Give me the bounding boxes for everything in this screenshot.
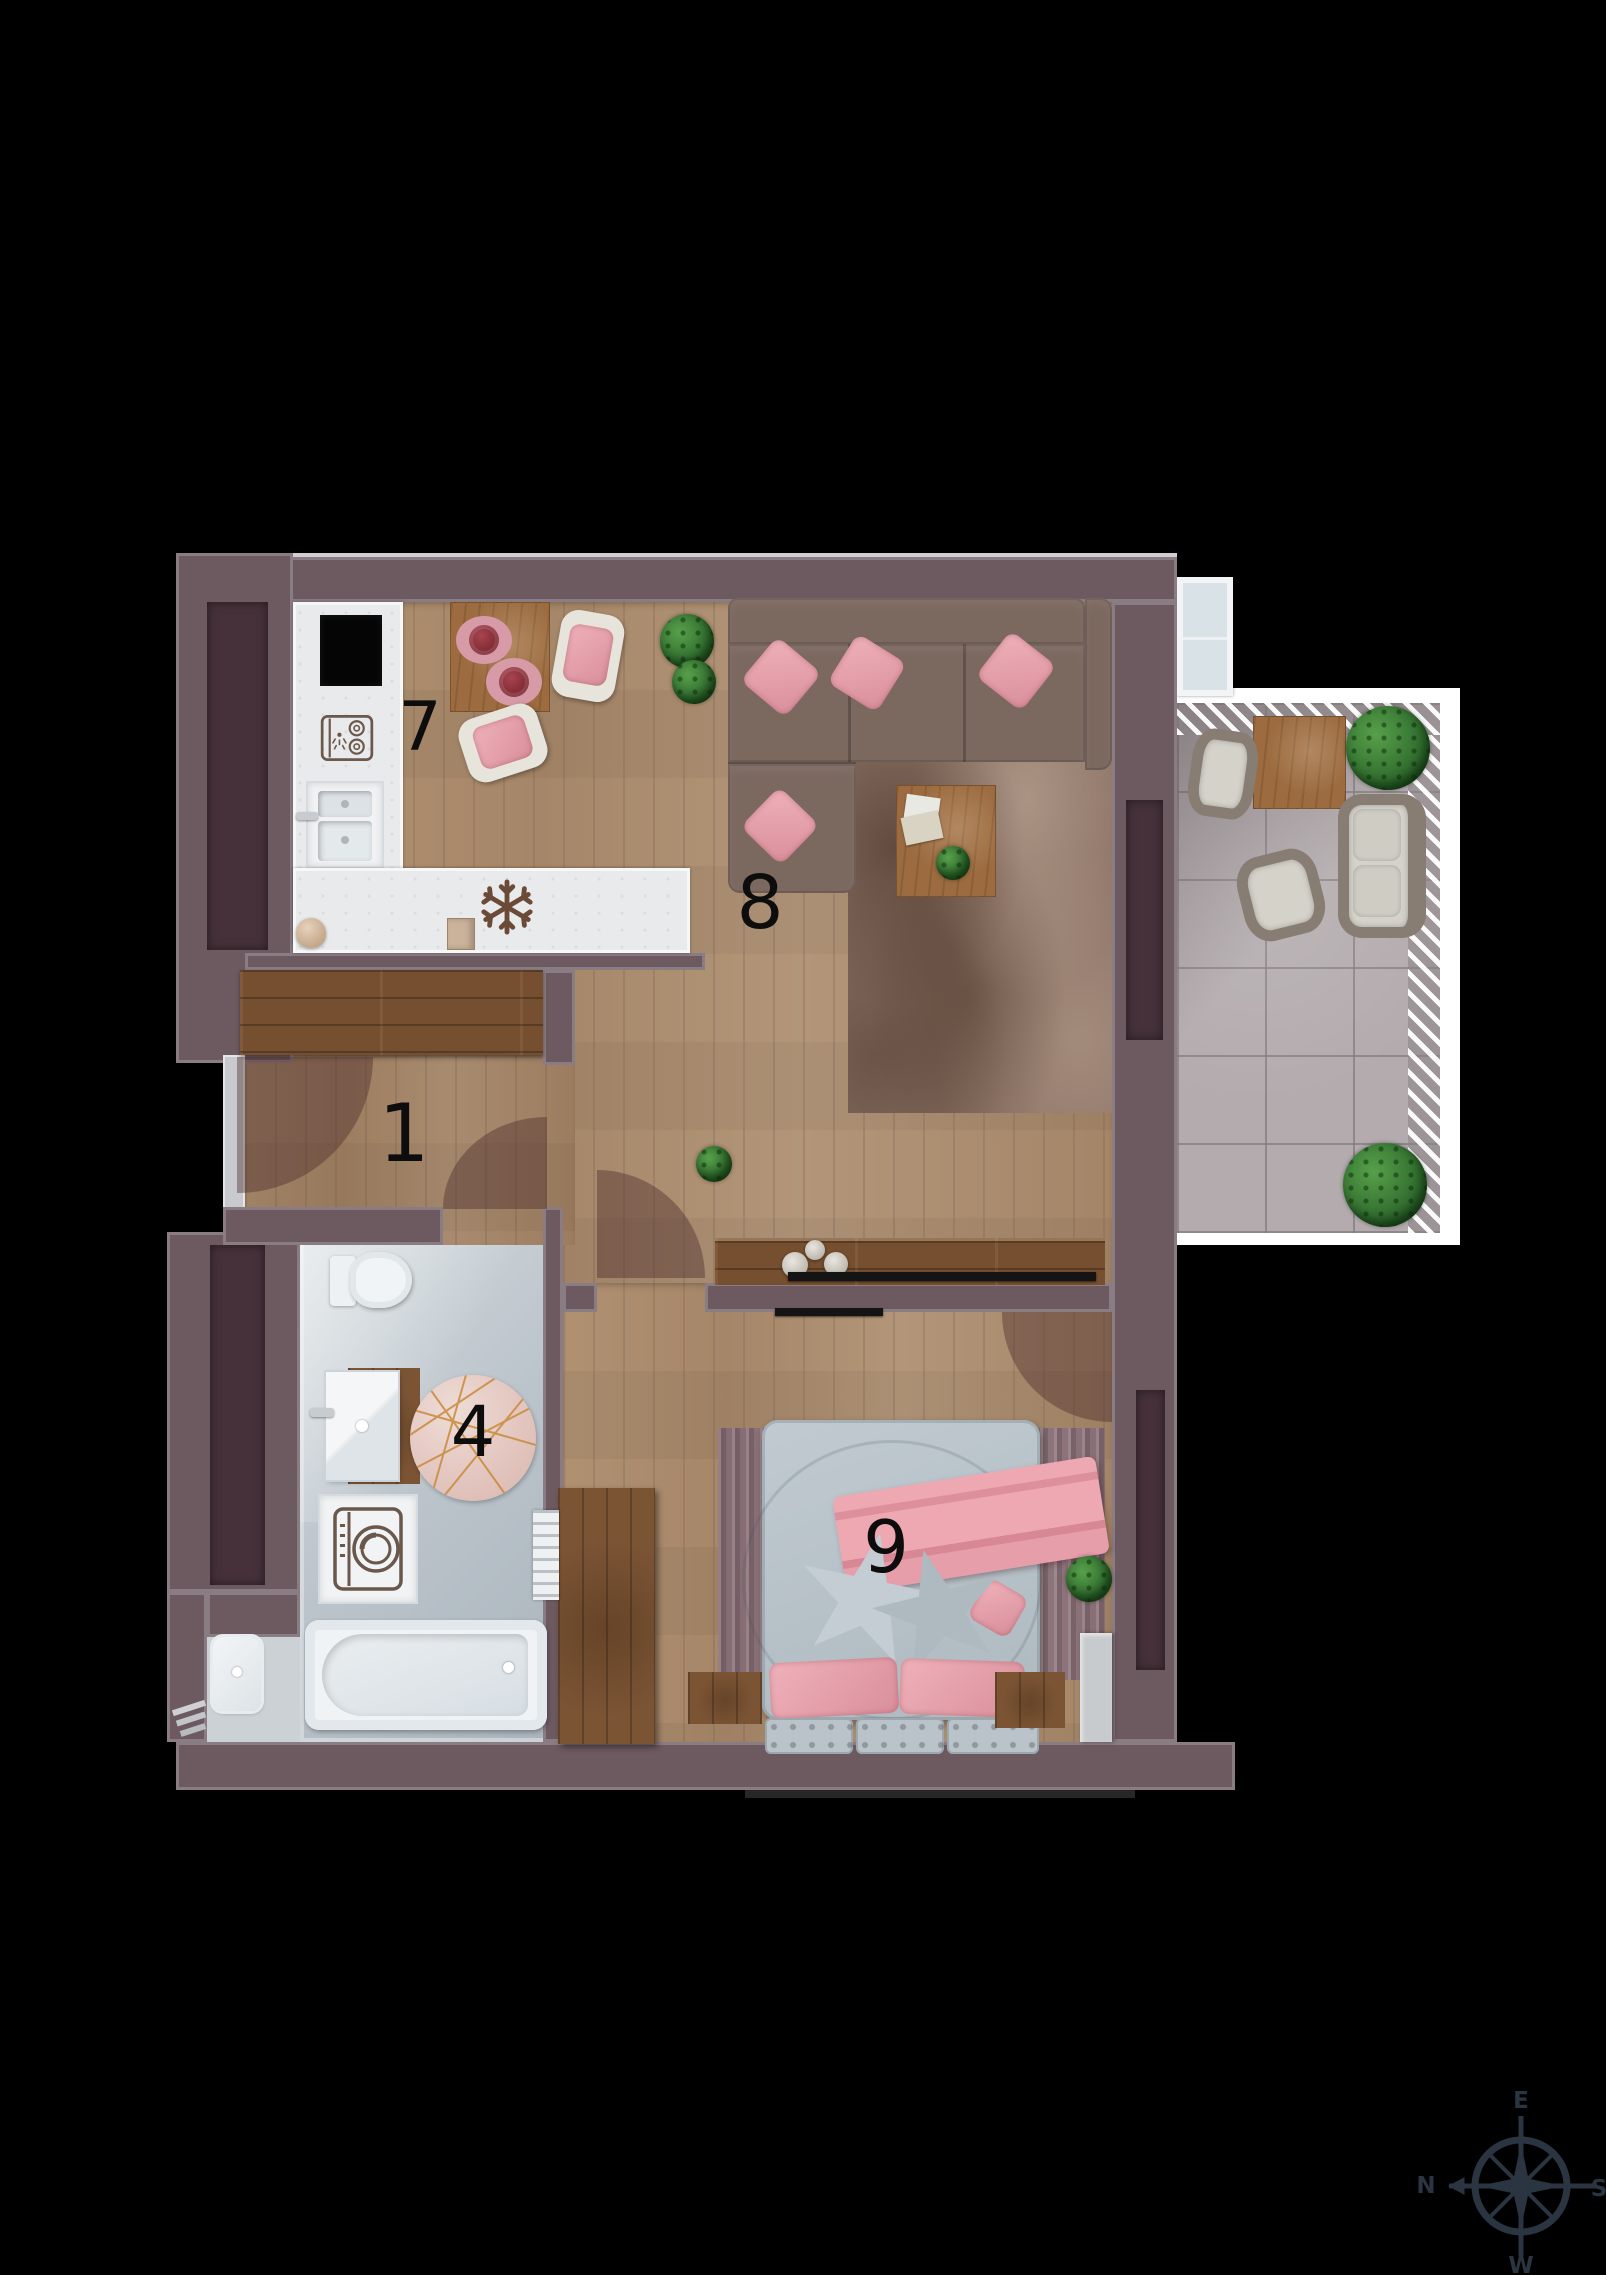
- entry-threshold-marks: [745, 1790, 1135, 1798]
- room-label-hall: 1: [379, 1094, 430, 1174]
- compass: E N S W: [1394, 2086, 1606, 2275]
- wall-piece-hall-right: [543, 970, 575, 1065]
- sofa-armrest-right: [1085, 598, 1112, 770]
- balcony-loveseat: [1338, 794, 1426, 938]
- coffee-table: [896, 785, 996, 897]
- candle-2: [499, 667, 529, 697]
- window-bedroom-right: [1136, 1390, 1165, 1670]
- vanity-faucet: [310, 1408, 334, 1417]
- bedroom-platform: [1080, 1633, 1112, 1742]
- sofa-back: [728, 598, 1085, 644]
- vanity-basin: [326, 1372, 398, 1480]
- window-kitchen-left: [207, 602, 268, 950]
- chair-cushion-right: [561, 623, 614, 688]
- headboard-segment-2: [856, 1718, 944, 1754]
- candle-1: [469, 625, 499, 655]
- nightstand-left: [688, 1672, 762, 1724]
- tv-on-sideboard: [788, 1272, 1096, 1281]
- room-label-bedroom: 9: [863, 1511, 909, 1583]
- balcony-door: [1177, 577, 1233, 696]
- balcony-plant-top: [1346, 706, 1430, 790]
- sink-drain-1: [341, 800, 349, 808]
- compass-letter-right: S: [1591, 2176, 1606, 2202]
- dishwasher-icon: [320, 714, 374, 762]
- toilet-bowl: [350, 1252, 412, 1308]
- window-bathroom-left: [210, 1245, 265, 1585]
- basin-drain: [356, 1420, 368, 1432]
- room-label-bathroom: 4: [451, 1397, 496, 1467]
- wall-hall-bathroom: [223, 1207, 443, 1245]
- bedroom-wardrobe: [558, 1488, 655, 1744]
- cooktop: [320, 615, 382, 686]
- balcony-door-mullion: [1183, 637, 1227, 640]
- compass-letter-bottom: W: [1508, 2253, 1533, 2275]
- loveseat-cushion-bottom: [1353, 865, 1401, 917]
- wall-bedroom-top-left: [563, 1283, 597, 1312]
- washing-machine: [320, 1496, 416, 1602]
- loveseat-cushion-top: [1353, 809, 1401, 861]
- sink-drain-2: [341, 836, 349, 844]
- wall-bedroom-top-right: [705, 1283, 1112, 1312]
- bedroom-plant: [1066, 1556, 1112, 1602]
- towel-radiator: [533, 1510, 559, 1600]
- sink-faucet: [296, 812, 318, 820]
- kitchen-sink: [308, 783, 382, 867]
- living-plant-tall-bottom: [672, 660, 716, 704]
- compass-letter-left: N: [1416, 2173, 1435, 2199]
- nightstand-right: [995, 1672, 1065, 1728]
- hall-wardrobe: [240, 970, 543, 1055]
- wall-bottom: [176, 1742, 1235, 1790]
- room-label-kitchen: 7: [398, 694, 441, 762]
- wall-kitchen-peninsula-back: [245, 953, 705, 970]
- plant-by-sideboard: [696, 1146, 732, 1182]
- bed-pillow-left: [769, 1657, 900, 1720]
- fridge-snowflake-icon: [478, 878, 536, 936]
- compass-letter-top: E: [1513, 2088, 1529, 2114]
- vase-2: [805, 1240, 825, 1260]
- chair-cushion-bottom: [470, 713, 535, 772]
- room-label-living: 8: [736, 866, 783, 940]
- wall-niche-top: [207, 1592, 300, 1637]
- coffee-table-plant: [936, 846, 970, 880]
- balcony-table: [1253, 716, 1346, 809]
- balcony-plant-bottom: [1343, 1143, 1427, 1227]
- washing-machine-icon: [332, 1506, 404, 1592]
- tv-bedroom-wall: [775, 1308, 883, 1316]
- headboard-segment-1: [765, 1718, 853, 1754]
- bathtub: [305, 1620, 547, 1730]
- floor-plan: 1 7 8 4 9 E N S W: [0, 0, 1606, 2275]
- teapot: [296, 918, 326, 948]
- wall-top: [176, 553, 1177, 602]
- bathtub-basin: [322, 1634, 528, 1716]
- placemat-1: [456, 616, 512, 664]
- niche-basin-drain: [232, 1667, 242, 1677]
- bathtub-drain: [503, 1662, 514, 1673]
- counter-box: [447, 918, 475, 950]
- window-living-right: [1126, 800, 1163, 1040]
- placemat-2: [486, 658, 542, 706]
- niche-basin: [213, 1637, 261, 1711]
